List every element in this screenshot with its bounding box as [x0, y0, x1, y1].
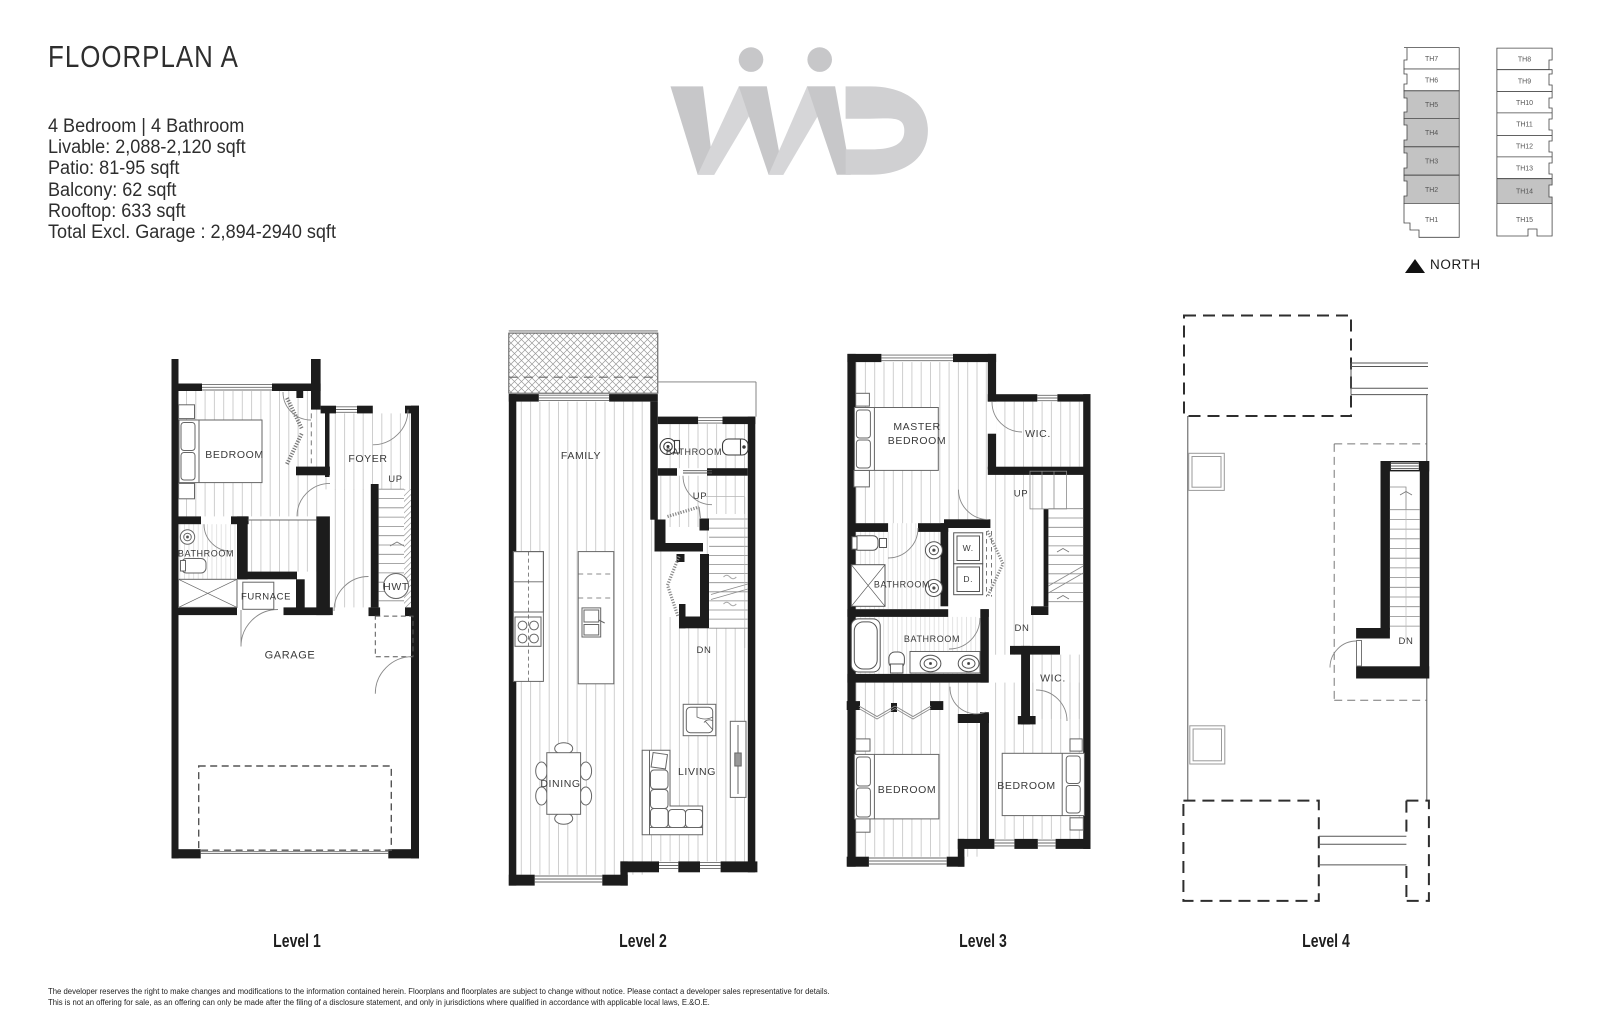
svg-text:D.: D. — [963, 574, 973, 584]
svg-text:BEDROOM: BEDROOM — [878, 784, 936, 796]
svg-text:TH4: TH4 — [1425, 130, 1438, 137]
svg-text:DINING: DINING — [540, 778, 580, 790]
svg-text:TH9: TH9 — [1518, 79, 1531, 86]
svg-text:MASTER: MASTER — [893, 421, 940, 433]
svg-text:FURNACE: FURNACE — [241, 592, 291, 603]
svg-text:BATHROOM: BATHROOM — [666, 447, 722, 457]
svg-text:UP: UP — [693, 491, 707, 502]
svg-text:DN: DN — [697, 645, 712, 656]
svg-text:WIC.: WIC. — [1040, 673, 1066, 685]
svg-text:TH2: TH2 — [1425, 187, 1438, 194]
svg-text:TH12: TH12 — [1516, 144, 1533, 151]
svg-text:TH3: TH3 — [1425, 159, 1438, 166]
svg-text:TH14: TH14 — [1516, 189, 1533, 196]
svg-text:TH10: TH10 — [1516, 100, 1533, 107]
svg-text:TH7: TH7 — [1425, 56, 1438, 63]
svg-text:UP: UP — [1014, 489, 1028, 500]
svg-text:TH13: TH13 — [1516, 166, 1533, 173]
svg-text:BEDROOM: BEDROOM — [997, 780, 1055, 792]
svg-text:BEDROOM: BEDROOM — [205, 449, 263, 461]
svg-text:W.: W. — [963, 543, 974, 553]
svg-text:GARAGE: GARAGE — [265, 650, 316, 662]
svg-text:TH8: TH8 — [1518, 57, 1531, 64]
svg-text:DN: DN — [1015, 623, 1030, 634]
svg-text:BATHROOM: BATHROOM — [874, 580, 930, 590]
svg-text:BATHROOM: BATHROOM — [178, 549, 234, 559]
svg-text:HWT: HWT — [383, 581, 409, 593]
svg-text:DN: DN — [1399, 636, 1414, 647]
svg-text:BEDROOM: BEDROOM — [888, 435, 946, 447]
svg-text:BATHROOM: BATHROOM — [904, 634, 960, 644]
svg-text:TH1: TH1 — [1425, 217, 1438, 224]
svg-text:WIC.: WIC. — [1025, 428, 1051, 440]
svg-text:TH5: TH5 — [1425, 102, 1438, 109]
svg-text:FAMILY: FAMILY — [561, 450, 601, 462]
svg-text:LIVING: LIVING — [678, 766, 716, 778]
svg-text:TH15: TH15 — [1516, 217, 1533, 224]
svg-text:TH11: TH11 — [1516, 122, 1533, 129]
svg-text:FOYER: FOYER — [348, 453, 387, 465]
svg-text:TH6: TH6 — [1425, 78, 1438, 85]
svg-text:UP: UP — [388, 474, 402, 485]
